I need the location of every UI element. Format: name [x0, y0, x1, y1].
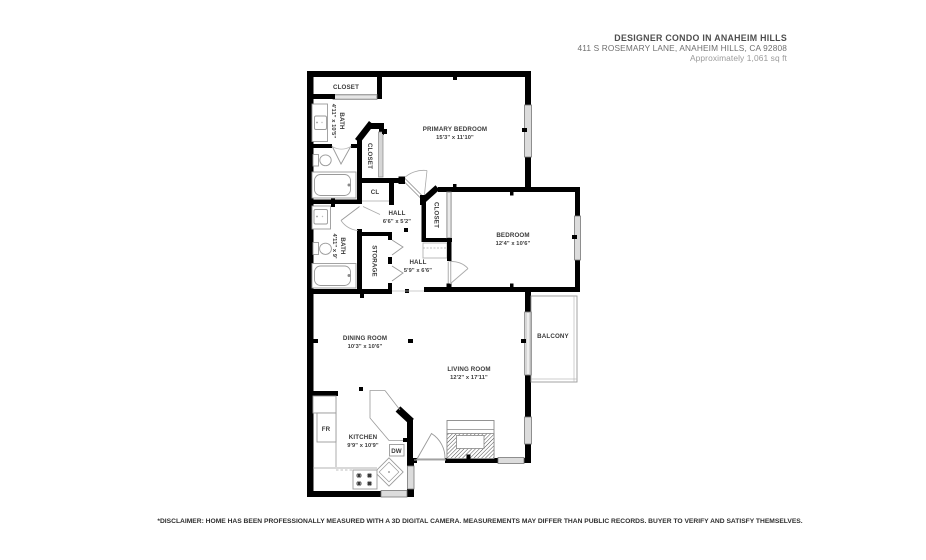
svg-text:12'2" x 17'11": 12'2" x 17'11": [450, 375, 488, 381]
svg-text:4'11" x 10'5": 4'11" x 10'5": [330, 104, 336, 139]
svg-text:HALL: HALL: [388, 210, 405, 217]
svg-text:HALL: HALL: [409, 259, 426, 266]
svg-text:CLOSET: CLOSET: [333, 84, 359, 91]
svg-text:KITCHEN: KITCHEN: [349, 434, 378, 441]
svg-text:DINING ROOM: DINING ROOM: [343, 335, 387, 342]
svg-text:10'3" x 10'6": 10'3" x 10'6": [348, 344, 383, 350]
svg-text:4'11" x 9': 4'11" x 9': [331, 233, 337, 259]
svg-text:CL: CL: [371, 189, 380, 196]
svg-text:411 S ROSEMARY LANE, ANAHEIM H: 411 S ROSEMARY LANE, ANAHEIM HILLS, CA 9…: [577, 43, 787, 53]
svg-text:9'9" x 10'9": 9'9" x 10'9": [347, 443, 379, 449]
svg-text:BEDROOM: BEDROOM: [496, 232, 529, 239]
svg-text:5'9" x 6'6": 5'9" x 6'6": [404, 268, 432, 274]
svg-text:STORAGE: STORAGE: [371, 245, 378, 277]
svg-text:*DISCLAIMER: HOME HAS BEEN PRO: *DISCLAIMER: HOME HAS BEEN PROFESSIONALL…: [157, 518, 802, 525]
svg-text:BATH: BATH: [338, 112, 345, 130]
svg-text:LIVING ROOM: LIVING ROOM: [447, 366, 490, 373]
svg-text:CLOSET: CLOSET: [433, 202, 440, 228]
svg-text:CLOSET: CLOSET: [366, 143, 373, 169]
svg-text:PRIMARY BEDROOM: PRIMARY BEDROOM: [423, 126, 487, 133]
svg-text:BATH: BATH: [339, 237, 346, 255]
svg-text:DW: DW: [391, 448, 402, 455]
svg-text:Approximately 1,061 sq ft: Approximately 1,061 sq ft: [690, 53, 788, 63]
svg-text:BALCONY: BALCONY: [537, 333, 569, 340]
svg-text:6'6" x 5'2": 6'6" x 5'2": [383, 219, 411, 225]
svg-text:12'4" x 10'6": 12'4" x 10'6": [496, 241, 531, 247]
svg-text:FR: FR: [322, 426, 331, 433]
svg-text:DESIGNER CONDO IN ANAHEIM HILL: DESIGNER CONDO IN ANAHEIM HILLS: [614, 33, 787, 43]
svg-text:15'3" x 11'10": 15'3" x 11'10": [436, 135, 474, 141]
